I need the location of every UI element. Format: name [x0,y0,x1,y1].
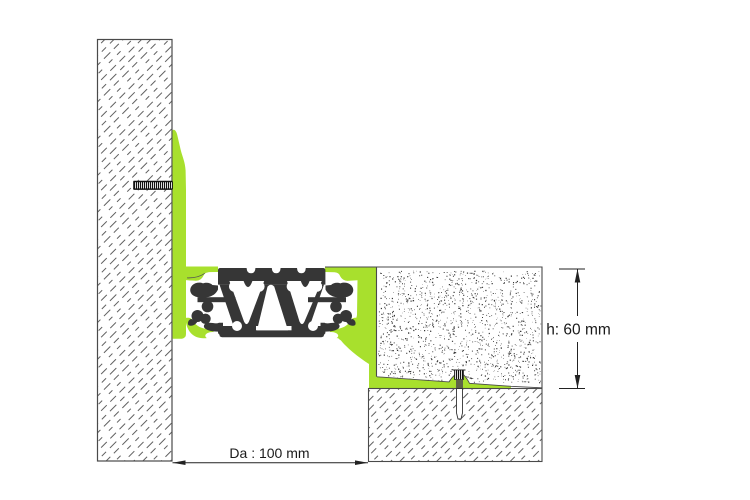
svg-text:Da : 100 mm: Da : 100 mm [229,445,309,461]
svg-text:h: 60 mm: h: 60 mm [546,322,611,339]
